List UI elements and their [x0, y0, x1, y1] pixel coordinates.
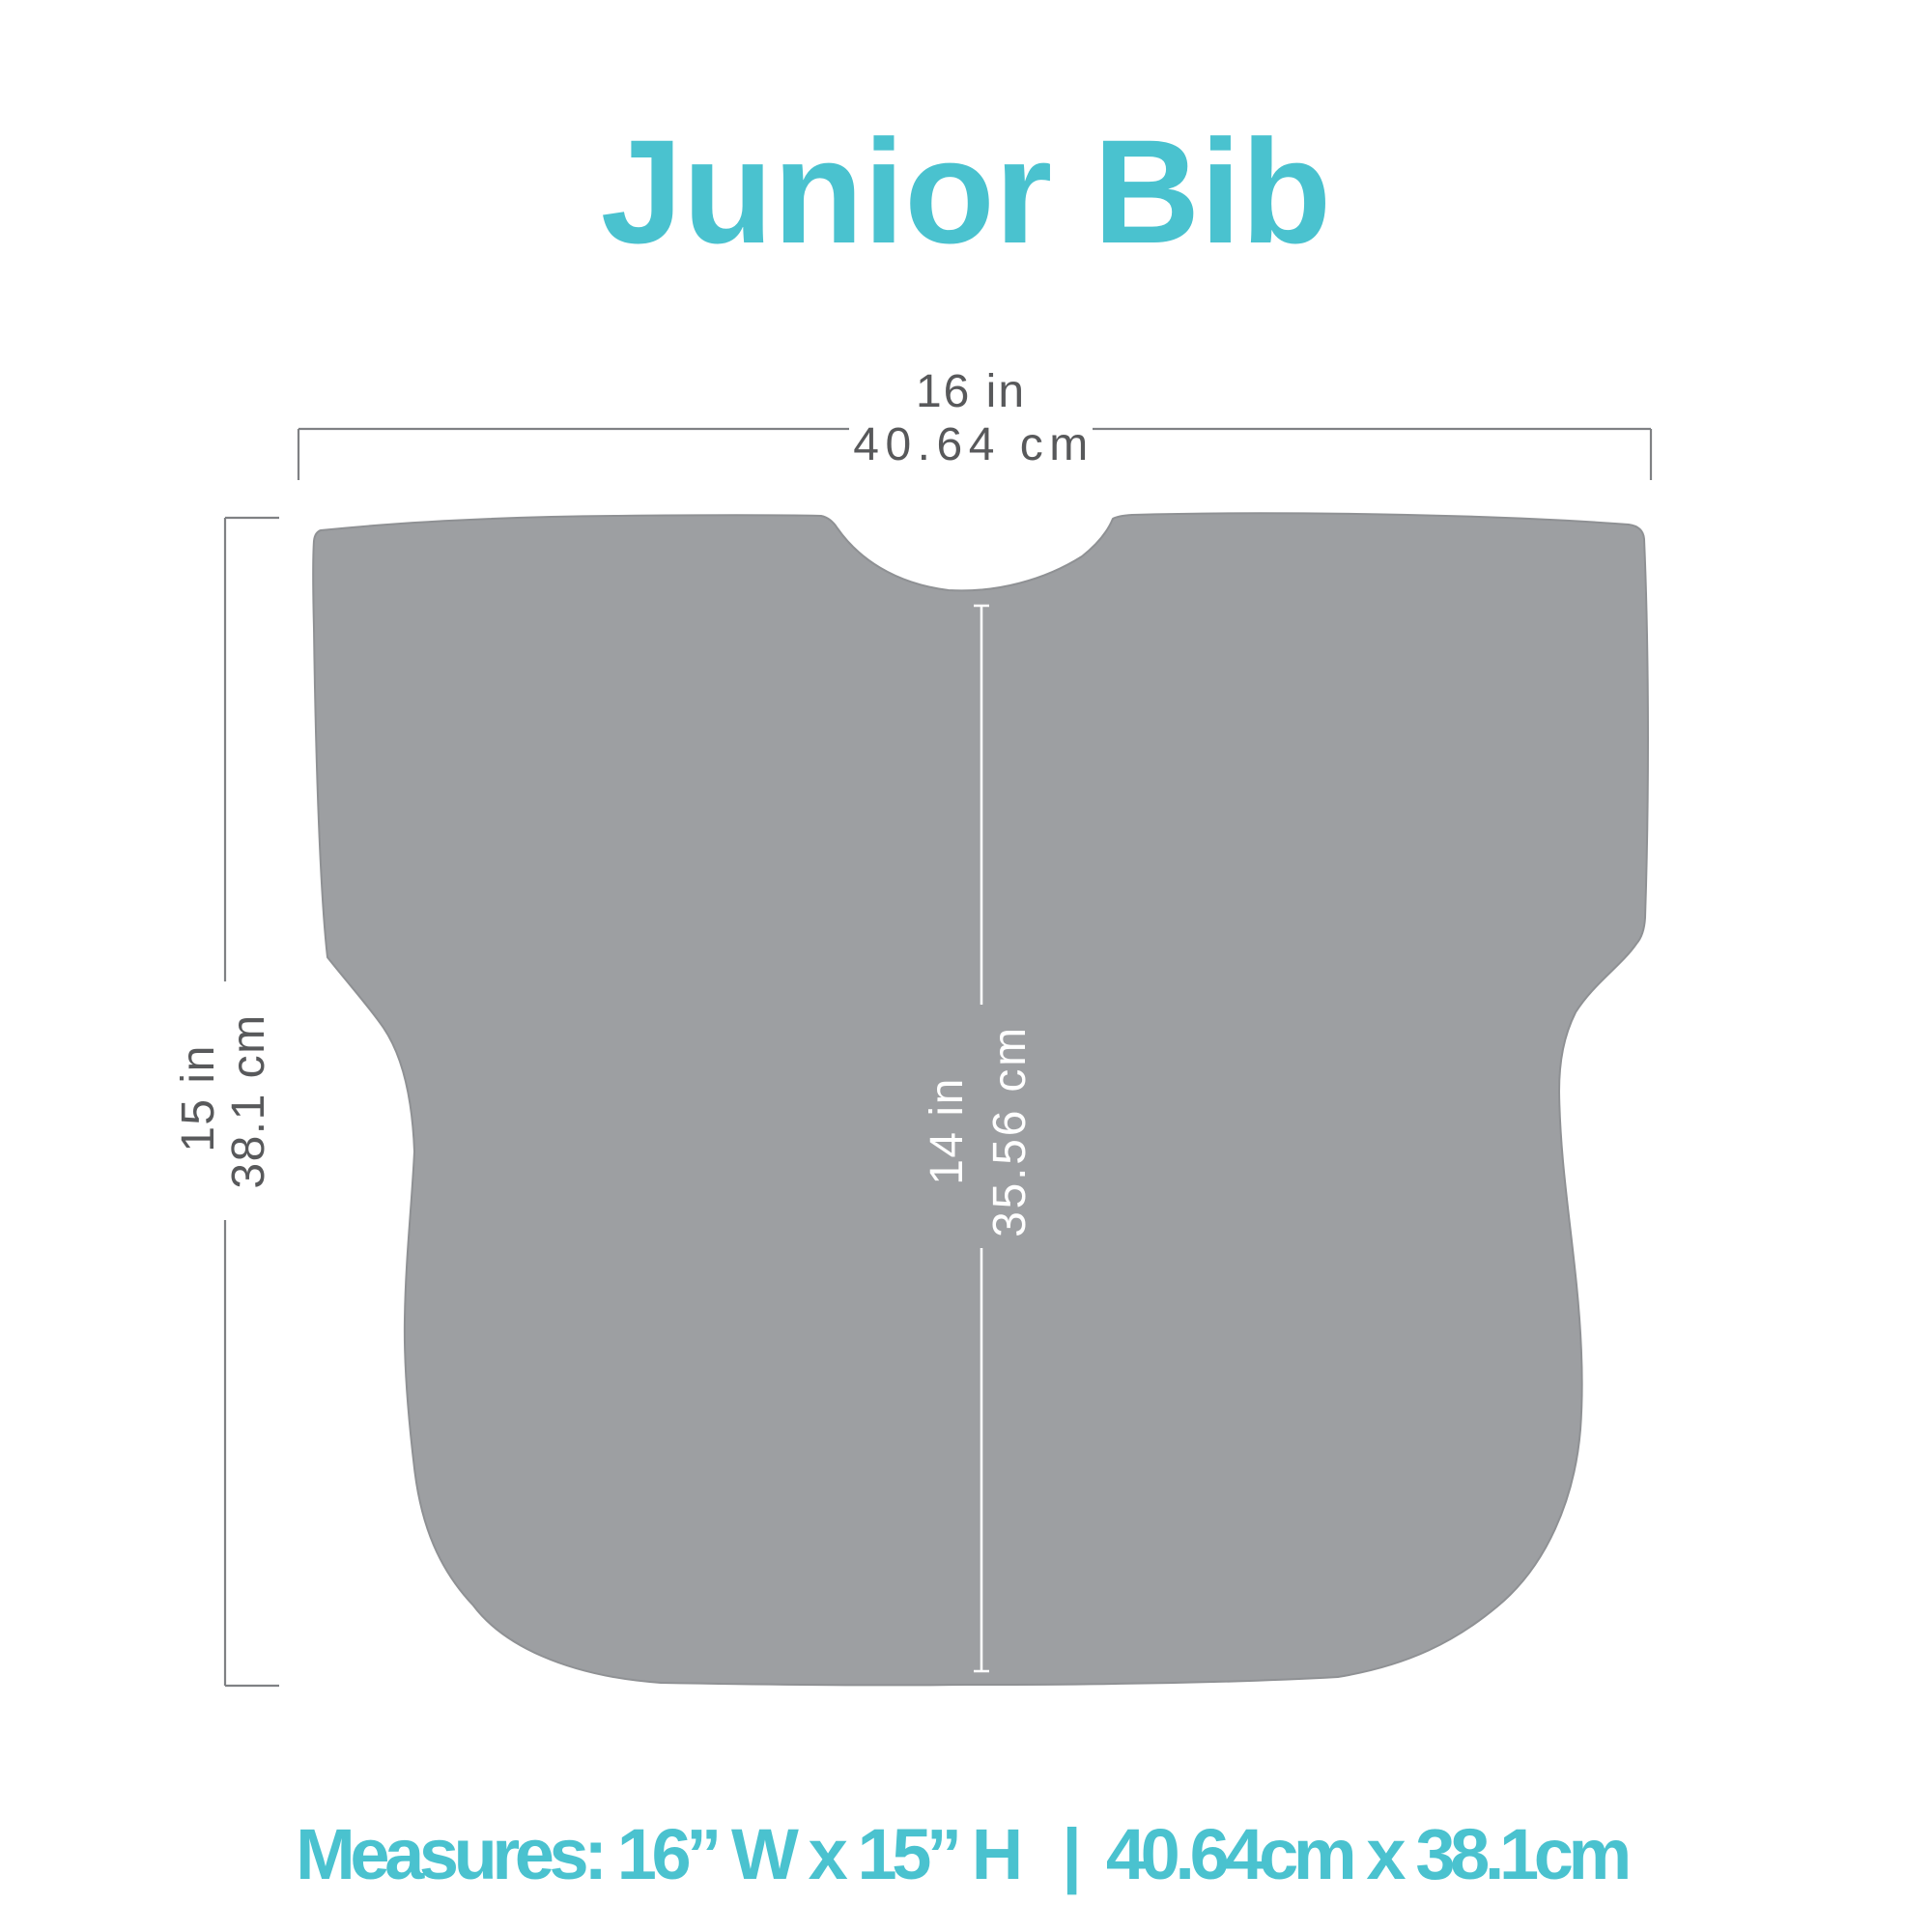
svg-text:38.1 cm: 38.1 cm [223, 1013, 274, 1188]
svg-text:16 in: 16 in [916, 366, 1026, 417]
svg-text:14 in: 14 in [922, 1077, 973, 1185]
svg-text:Measures: 16” W x 15” H | 4: Measures: 16” W x 15” H | 40.64cm x 38.1… [296, 1814, 1628, 1895]
svg-text:35.56 cm: 35.56 cm [984, 1025, 1036, 1237]
svg-text:40.64 cm: 40.64 cm [853, 419, 1094, 470]
svg-text:15 in: 15 in [173, 1044, 224, 1152]
svg-text:Junior Bib: Junior Bib [601, 109, 1331, 274]
